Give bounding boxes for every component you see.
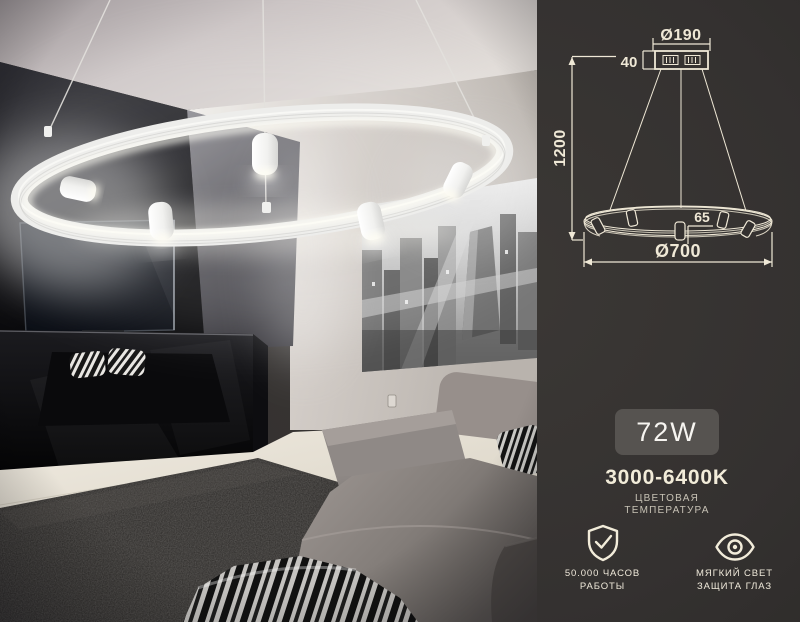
dimension-diagram: Ø190 40 1200 xyxy=(537,0,800,300)
dim-canopy-height: 40 xyxy=(572,51,655,71)
color-temp-label-line1: ЦВЕТОВАЯ xyxy=(557,493,777,505)
feature-text-line1: МЯГКИЙ СВЕТ xyxy=(696,567,773,580)
diagram-canopy-vents xyxy=(663,56,700,65)
lifestyle-photo xyxy=(0,0,537,622)
color-temp-label-line2: ТЕМПЕРАТУРА xyxy=(557,505,777,517)
dim-label: Ø700 xyxy=(655,241,701,261)
dim-label: 1200 xyxy=(552,129,569,167)
spec-panel: Ø190 40 1200 xyxy=(537,0,800,622)
color-temp-label: ЦВЕТОВАЯ ТЕМПЕРАТУРА xyxy=(557,493,777,517)
color-temp-value: 3000-6400K xyxy=(557,466,777,490)
eye-icon xyxy=(714,524,756,562)
product-image: Ø190 40 1200 xyxy=(0,0,800,622)
dim-label: Ø190 xyxy=(660,27,701,44)
shield-check-icon xyxy=(586,524,620,562)
wattage-badge: 72W xyxy=(615,409,719,455)
diagram-wires xyxy=(610,69,746,211)
dim-label: 40 xyxy=(621,54,638,71)
feature-list: 50.000 ЧАСОВ РАБОТЫ МЯГКИЙ СВЕТ ЗАЩИТА Г… xyxy=(537,524,800,593)
photo-vignette xyxy=(0,0,537,622)
living-room-scene xyxy=(0,0,537,622)
feature-soft-light: МЯГКИЙ СВЕТ ЗАЩИТА ГЛАЗ xyxy=(680,524,790,593)
feature-text-line2: РАБОТЫ xyxy=(580,580,625,593)
feature-text-line2: ЗАЩИТА ГЛАЗ xyxy=(697,580,772,593)
dim-label: 65 xyxy=(694,209,710,225)
dim-canopy-diameter: Ø190 xyxy=(653,27,710,51)
dim-spot-length: 65 xyxy=(688,209,713,244)
feature-text-line1: 50.000 ЧАСОВ xyxy=(565,567,640,580)
feature-lifetime: 50.000 ЧАСОВ РАБОТЫ xyxy=(548,524,658,593)
dim-suspension-length: 1200 xyxy=(552,57,583,240)
